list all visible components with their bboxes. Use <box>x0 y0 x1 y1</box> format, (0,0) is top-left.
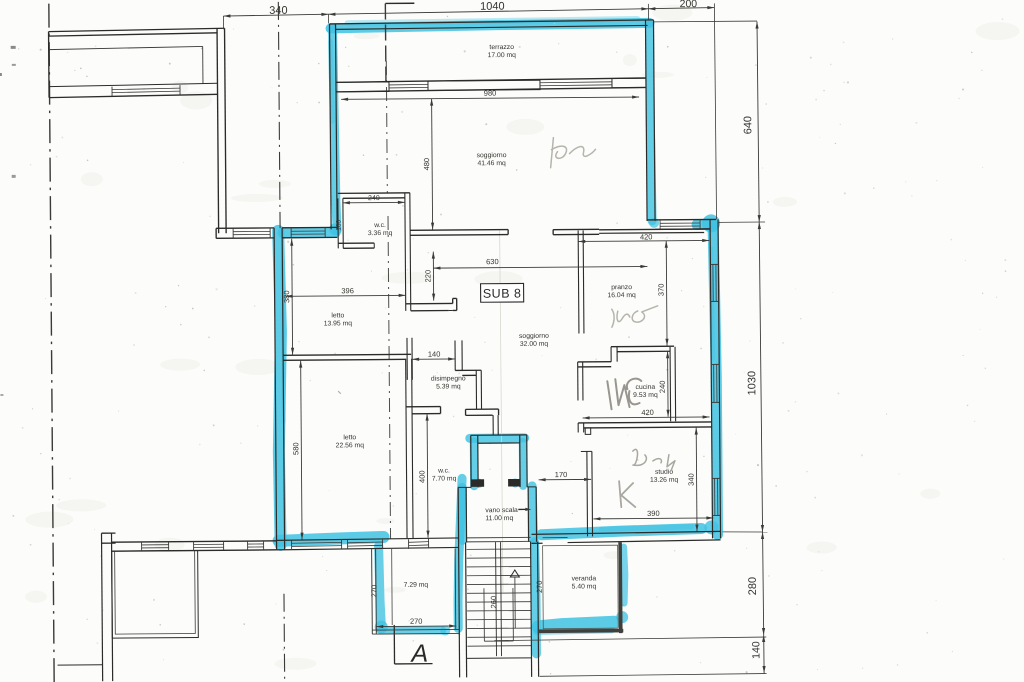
svg-text:13.26 mq: 13.26 mq <box>650 477 679 484</box>
svg-text:260: 260 <box>489 596 498 609</box>
svg-text:terrazzo: terrazzo <box>489 44 514 51</box>
svg-text:220: 220 <box>423 270 432 283</box>
svg-text:240: 240 <box>658 381 667 394</box>
svg-text:soggiorno: soggiorno <box>519 333 549 340</box>
svg-text:22.56 mq: 22.56 mq <box>336 442 365 449</box>
svg-text:1030: 1030 <box>746 371 758 396</box>
svg-text:640: 640 <box>742 116 754 134</box>
svg-text:letto: letto <box>331 312 344 319</box>
svg-text:380: 380 <box>282 290 291 303</box>
svg-text:disimpegno: disimpegno <box>431 375 466 382</box>
svg-text:370: 370 <box>657 284 666 297</box>
svg-text:letto: letto <box>343 434 356 441</box>
svg-text:480: 480 <box>422 158 431 171</box>
svg-text:140: 140 <box>750 641 762 659</box>
svg-text:630: 630 <box>486 257 499 266</box>
svg-text:140: 140 <box>428 350 441 359</box>
svg-text:400: 400 <box>418 470 427 483</box>
svg-text:170: 170 <box>555 470 568 479</box>
svg-text:soggiorno: soggiorno <box>477 152 507 159</box>
svg-text:9.53 mq: 9.53 mq <box>633 392 658 399</box>
svg-text:390: 390 <box>647 509 660 518</box>
svg-text:veranda: veranda <box>572 575 597 582</box>
svg-text:studio: studio <box>655 469 673 476</box>
svg-text:340: 340 <box>269 5 287 17</box>
svg-text:cucina: cucina <box>636 384 656 391</box>
svg-text:5.39 mq: 5.39 mq <box>436 383 461 390</box>
svg-text:13.95 mq: 13.95 mq <box>324 320 353 327</box>
svg-text:270: 270 <box>369 585 378 598</box>
svg-text:240: 240 <box>368 195 380 202</box>
svg-text:A: A <box>409 640 428 668</box>
svg-text:41.46 mq: 41.46 mq <box>477 160 506 167</box>
svg-text:340: 340 <box>687 473 696 486</box>
svg-text:396: 396 <box>341 286 354 295</box>
svg-text:280: 280 <box>747 577 759 595</box>
svg-text:270: 270 <box>535 580 544 593</box>
svg-text:32.00 mq: 32.00 mq <box>520 341 549 348</box>
svg-text:11.00 mq: 11.00 mq <box>485 515 513 522</box>
svg-text:980: 980 <box>484 89 497 98</box>
svg-text:420: 420 <box>641 408 654 417</box>
svg-text:1040: 1040 <box>480 1 505 13</box>
svg-text:w.c.: w.c. <box>437 467 450 474</box>
svg-text:580: 580 <box>291 442 300 455</box>
svg-text:pranzo: pranzo <box>611 284 632 291</box>
svg-text:200: 200 <box>680 0 698 10</box>
svg-text:160: 160 <box>336 220 343 231</box>
svg-text:16.04 mq: 16.04 mq <box>607 292 636 299</box>
svg-text:7.70 mq: 7.70 mq <box>432 475 457 482</box>
svg-text:vano scala: vano scala <box>485 507 518 514</box>
svg-text:w.c.: w.c. <box>373 222 386 229</box>
svg-text:SUB 8: SUB 8 <box>483 286 522 300</box>
svg-text:420: 420 <box>640 232 653 241</box>
svg-text:5.40 mq: 5.40 mq <box>572 583 597 590</box>
svg-text:7.29 mq: 7.29 mq <box>404 582 429 589</box>
svg-text:3.36 mq: 3.36 mq <box>368 230 393 237</box>
svg-text:17.00 mq: 17.00 mq <box>488 52 517 59</box>
svg-text:270: 270 <box>410 617 423 626</box>
